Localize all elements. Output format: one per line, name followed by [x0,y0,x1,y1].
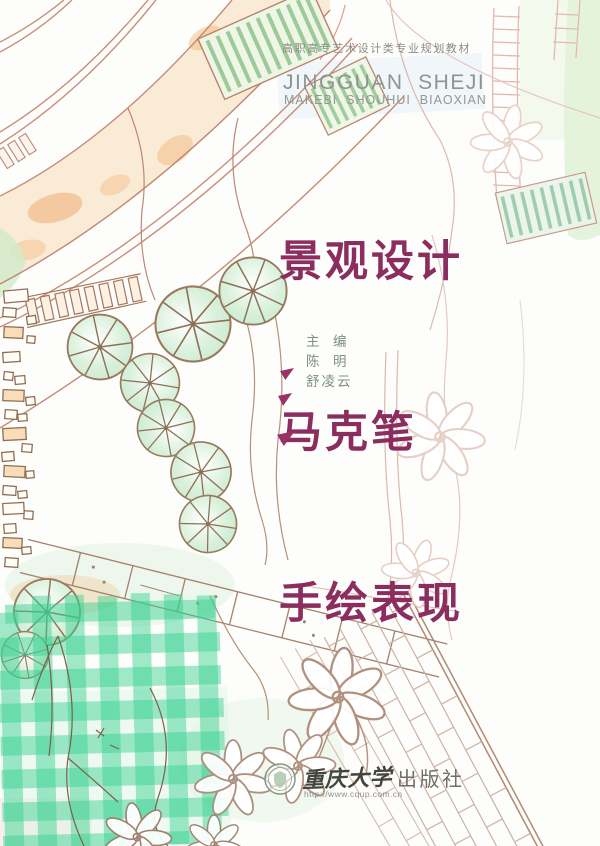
book-title-line-1: 景观设计 [279,234,463,291]
book-title: 景观设计 马克笔 手绘表现 [279,120,463,747]
pinyin-title: JINGGUAN SHEJI [283,71,485,95]
editor-name-1: 陈 明 [306,354,349,369]
editor-name-2: 舒凌云 [306,374,353,389]
book-title-line-3: 手绘表现 [279,576,463,633]
university-seal-icon [262,761,298,797]
publisher-name-suffix: 出版社 [397,763,465,792]
editors-line: 主 编 陈 明 舒凌云 [283,315,364,405]
publisher-block: 重庆大学 出版社 http://www.cqup.com.cn [262,761,465,799]
book-cover: 高职高专艺术设计类专业规划教材 JINGGUAN SHEJI MAKEBI SH… [0,0,600,846]
series-label: 高职高专艺术设计类专业规划教材 [282,40,471,56]
publisher-name-calligraphy: 重庆大学 [301,759,392,794]
editors-label: 主 编 [306,334,349,349]
book-title-line-2: 马克笔 [279,405,463,462]
pinyin-subtitle: MAKEBI SHOUHUI BIAOXIAN [284,93,487,107]
